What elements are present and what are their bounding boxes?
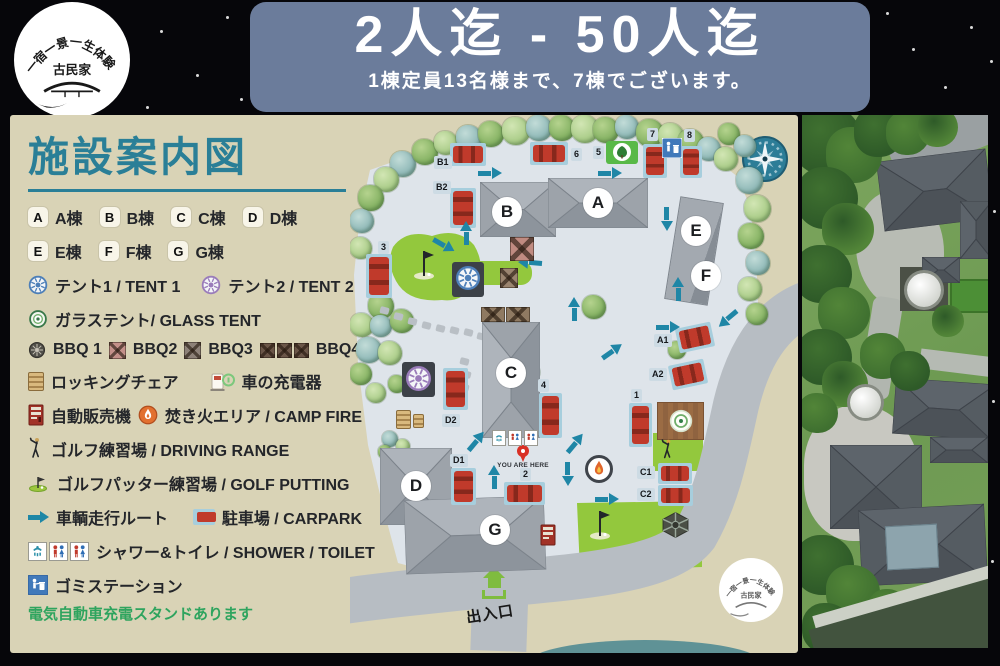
- photo-dome-tent: [850, 387, 881, 418]
- rocking-chair-label: ロッキングチェア: [51, 369, 179, 393]
- bbq2-icon: [109, 342, 126, 359]
- star-dot: [196, 74, 199, 77]
- garbage-label: ゴミステーション: [55, 573, 183, 597]
- parking-spot-B1: [450, 143, 486, 166]
- photo-tree: [890, 351, 930, 391]
- brand-logo-art: 一宿一景一生体験 古民家: [14, 2, 130, 118]
- legend-building-A: AA棟: [28, 205, 83, 229]
- washroom-icon: [524, 430, 538, 446]
- parking-label-1: 1: [631, 389, 642, 402]
- star-dot: [160, 30, 163, 33]
- green-tree-pad-icon: [606, 141, 638, 164]
- building-letter-C: C: [496, 358, 526, 388]
- route-label: 車輌走行ルート: [56, 505, 168, 529]
- rocking-chair-icon: [413, 414, 424, 428]
- legend-buildings-row-2: EE棟FF棟GG棟: [28, 239, 362, 263]
- legend-row-golf-putting: ゴルフパッター練習場 / GOLF PUTTING: [28, 471, 362, 495]
- legend-row-vending-campfire: 自動販売機 焚き火エリア / CAMP FIRE: [28, 403, 362, 427]
- bbq-gazebo-icon: [661, 511, 690, 539]
- photo-building-roof: [930, 437, 988, 463]
- parking-spot-C2: [658, 485, 693, 506]
- parking-spot-8: [680, 146, 702, 178]
- legend-row-shower-toilet: シャワー&トイレ / SHOWER / TOILET: [28, 539, 362, 563]
- legend-row-driving-range: ゴルフ練習場 / DRIVING RANGE: [28, 437, 362, 461]
- building-label: B棟: [127, 205, 155, 229]
- parking-label-B1: B1: [434, 156, 452, 169]
- glass-tent-icon: [28, 309, 48, 329]
- car-icon: [369, 257, 389, 295]
- photo-tree: [932, 305, 964, 337]
- logo-main-text: 古民家: [740, 591, 762, 600]
- route-arrow-icon: [28, 511, 49, 523]
- bbq4-icon: [277, 343, 292, 358]
- star-dot: [944, 86, 947, 89]
- bbq-table-icon: [510, 237, 534, 261]
- golf-flag-icon: [412, 247, 438, 281]
- building-letter-E: E: [681, 216, 711, 246]
- legend-building-E: EE棟: [28, 239, 82, 263]
- car-icon: [446, 371, 465, 407]
- star-dot: [912, 48, 915, 51]
- bbq-table-icon: [506, 307, 530, 322]
- photo-river: [920, 607, 988, 648]
- glass-tent-label: ガラステント/ GLASS TENT: [55, 307, 261, 331]
- washroom-icon: [508, 430, 522, 446]
- illustrated-map: YOU ARE HERE 出入口 一宿一景一生体験 古民家 ABCDEFGB1B…: [350, 115, 798, 653]
- tent2-icon: [201, 275, 221, 295]
- campfire-label: 焚き火エリア / CAMP FIRE: [165, 403, 362, 427]
- tree-icon: [350, 363, 372, 385]
- aerial-photo: [802, 115, 988, 648]
- parking-label-7: 7: [647, 128, 658, 141]
- carpark-icon: [193, 509, 215, 525]
- legend-row-bbq: BBQ 1 BBQ2 BBQ3 BBQ4: [28, 341, 362, 359]
- parking-label-C2: C2: [637, 488, 655, 501]
- bbq2-label: BBQ2: [133, 341, 177, 359]
- brand-logo-small: 一宿一景一生体験 古民家: [719, 558, 783, 622]
- legend-building-C: CC棟: [171, 205, 226, 229]
- star-dot: [970, 26, 973, 29]
- car-icon: [507, 485, 542, 502]
- car-icon: [671, 362, 704, 387]
- parking-label-8: 8: [684, 129, 695, 142]
- tent2-label: テント2 / TENT 2: [228, 273, 353, 297]
- glass-tent-icon: [657, 402, 704, 440]
- star-dot: [991, 560, 994, 563]
- star-dot: [240, 98, 243, 101]
- route-arrow: [562, 462, 574, 486]
- photo-skylight-roof: [885, 524, 939, 571]
- parking-label-C1: C1: [637, 466, 655, 479]
- tree-icon: [746, 251, 770, 275]
- parking-label-A2: A2: [649, 368, 667, 381]
- tent-icon: [402, 362, 435, 397]
- golf-flag-icon: [588, 507, 614, 541]
- vending-machine-icon: [28, 404, 44, 426]
- car-icon: [454, 471, 473, 502]
- bbq-table-icon: [500, 268, 518, 288]
- garbage-station-icon: [662, 138, 682, 158]
- parking-spot-1: [629, 403, 652, 447]
- shower-icon: [28, 542, 47, 561]
- carpark-label: 駐車場 / CARPARK: [222, 505, 362, 529]
- parking-label-D1: D1: [450, 454, 468, 467]
- parking-label-A1: A1: [654, 334, 672, 347]
- legend-row-tents: テント1 / TENT 1 テント2 / TENT 2: [28, 273, 362, 297]
- bbq-table-icon: [481, 307, 505, 322]
- tree-icon: [746, 303, 768, 325]
- car-charger-icon: [209, 370, 235, 392]
- building-chip: D: [243, 207, 263, 227]
- tree-icon: [358, 185, 384, 211]
- legend-row-garbage: ゴミステーション: [28, 573, 362, 597]
- driving-range-label: ゴルフ練習場 / DRIVING RANGE: [51, 437, 289, 461]
- photo-dome-tent: [907, 273, 941, 307]
- map-panel: 施設案内図 AA棟BB棟CC棟DD棟 EE棟FF棟GG棟 テント1 / TENT…: [10, 115, 798, 653]
- parking-spot-D1: [451, 468, 476, 505]
- tree-icon: [734, 135, 756, 157]
- route-arrow: [478, 167, 502, 179]
- parking-label-D2: D2: [442, 414, 460, 427]
- route-arrow: [568, 297, 580, 321]
- star-dot: [992, 400, 995, 403]
- bbq1-icon: [28, 341, 46, 359]
- campfire-icon: [585, 455, 613, 483]
- car-icon: [678, 325, 711, 350]
- tree-icon: [736, 167, 763, 194]
- building-chip: G: [168, 241, 188, 261]
- legend-row-glass-tent: ガラステント/ GLASS TENT: [28, 307, 362, 331]
- tent-icon: [452, 262, 484, 297]
- parking-label-2: 2: [520, 468, 531, 481]
- car-icon: [542, 396, 559, 435]
- logo-main-text: 古民家: [53, 62, 91, 77]
- tree-icon: [370, 315, 392, 337]
- parking-spot-4: [539, 393, 562, 438]
- building-label: A棟: [55, 205, 83, 229]
- car-icon: [453, 146, 483, 163]
- building-letter-A: A: [583, 188, 613, 218]
- legend-building-D: DD棟: [243, 205, 298, 229]
- star-dot: [146, 106, 149, 109]
- route-arrow: [488, 465, 500, 489]
- golfer-icon: [28, 437, 44, 461]
- car-icon: [453, 191, 473, 225]
- route-arrow: [672, 277, 684, 301]
- car-icon: [632, 406, 649, 444]
- title-underline: [28, 189, 346, 192]
- legend-building-G: GG棟: [168, 239, 223, 263]
- parking-spot-D2: [443, 368, 468, 410]
- car-icon: [661, 466, 689, 481]
- garbage-station-icon: [28, 575, 48, 595]
- parking-label-4: 4: [538, 379, 549, 392]
- ev-charger-note: 電気自動車充電スタンドあります: [28, 603, 362, 624]
- vending-label: 自動販売機: [51, 403, 131, 427]
- tree-icon: [582, 295, 606, 319]
- car-charger-label: 車の充電器: [242, 369, 322, 393]
- parking-label-B2: B2: [433, 181, 451, 194]
- parking-label-3: 3: [378, 241, 389, 254]
- parking-label-6: 6: [571, 148, 582, 161]
- legend: 施設案内図 AA棟BB棟CC棟DD棟 EE棟FF棟GG棟 テント1 / TENT…: [28, 123, 362, 624]
- route-arrow: [661, 207, 673, 231]
- tent1-icon: [28, 275, 48, 295]
- building-roof: [404, 496, 546, 575]
- capacity-banner: 2人迄 - 50人迄 1棟定員13名様まで、7棟でございます。: [250, 2, 870, 112]
- building-letter-D: D: [401, 471, 431, 501]
- shower-toilet-label: シャワー&トイレ / SHOWER / TOILET: [96, 539, 375, 563]
- route-arrow: [460, 221, 472, 245]
- building-letter-G: G: [480, 515, 510, 545]
- bbq4-icon: [260, 343, 275, 358]
- shower-toilet-icons: [492, 430, 538, 446]
- star-dot: [886, 12, 889, 15]
- building-label: F棟: [126, 239, 152, 263]
- photo-building-roof: [960, 201, 988, 259]
- building-label: C棟: [198, 205, 226, 229]
- exit-arrow-icon: [482, 567, 508, 599]
- toilet-icon: [49, 542, 68, 561]
- tree-icon: [378, 341, 402, 365]
- building-chip: B: [100, 207, 120, 227]
- brand-logo: 一宿一景一生体験 古民家: [14, 2, 130, 118]
- parking-spot-2: [504, 482, 545, 505]
- facility-map-poster: 2人迄 - 50人迄 1棟定員13名様まで、7棟でございます。 一宿一景一生体験…: [0, 0, 1000, 666]
- route-arrow: [595, 493, 619, 505]
- capacity-subtitle: 1棟定員13名様まで、7棟でございます。: [250, 66, 870, 93]
- tree-icon: [744, 195, 771, 222]
- golf-putting-label: ゴルフパッター練習場 / GOLF PUTTING: [57, 471, 349, 495]
- star-dot: [990, 60, 993, 63]
- car-icon: [533, 145, 565, 162]
- legend-building-F: FF棟: [99, 239, 152, 263]
- toilet-icon: [70, 542, 89, 561]
- car-icon: [683, 149, 699, 175]
- tree-icon: [350, 209, 374, 233]
- golfer-icon: [660, 437, 675, 463]
- rocking-chair-icon: [396, 410, 411, 429]
- capacity-title: 2人迄 - 50人迄: [250, 6, 870, 66]
- parking-label-5: 5: [593, 146, 604, 159]
- route-arrow: [598, 167, 622, 179]
- building-label: G棟: [195, 239, 223, 263]
- building-letter-B: B: [492, 197, 522, 227]
- tree-icon: [738, 223, 764, 249]
- legend-row-route-carpark: 車輌走行ルート 駐車場 / CARPARK: [28, 505, 362, 529]
- bbq4-icon: [294, 343, 309, 358]
- vending-machine-icon: [540, 522, 556, 548]
- bbq3-label: BBQ3: [208, 341, 252, 359]
- building-label: E棟: [55, 239, 82, 263]
- page-title: 施設案内図: [28, 123, 362, 183]
- building-letter-F: F: [691, 261, 721, 291]
- tent1-label: テント1 / TENT 1: [55, 273, 180, 297]
- golf-putting-icon: [28, 474, 50, 492]
- parking-spot-3: [366, 254, 392, 298]
- legend-buildings-row-1: AA棟BB棟CC棟DD棟: [28, 205, 362, 229]
- tree-icon: [366, 383, 386, 403]
- route-arrow: [656, 321, 680, 333]
- tree-icon: [738, 277, 762, 301]
- star-dot: [993, 210, 996, 213]
- building-label: D棟: [270, 205, 298, 229]
- campfire-icon: [138, 405, 158, 425]
- bbq1-label: BBQ 1: [53, 341, 102, 359]
- parking-spot-C1: [658, 463, 692, 484]
- legend-building-B: BB棟: [100, 205, 155, 229]
- building-chip: A: [28, 207, 48, 227]
- rocking-chair-icon: [28, 372, 44, 391]
- legend-row-chair-charger: ロッキングチェア 車の充電器: [28, 369, 362, 393]
- parking-spot-6: [530, 142, 568, 165]
- building-chip: E: [28, 241, 48, 261]
- bbq3-icon: [184, 342, 201, 359]
- car-icon: [661, 488, 690, 503]
- building-chip: C: [171, 207, 191, 227]
- building-chip: F: [99, 241, 119, 261]
- washroom-icon: [492, 430, 506, 446]
- star-dot: [226, 16, 229, 19]
